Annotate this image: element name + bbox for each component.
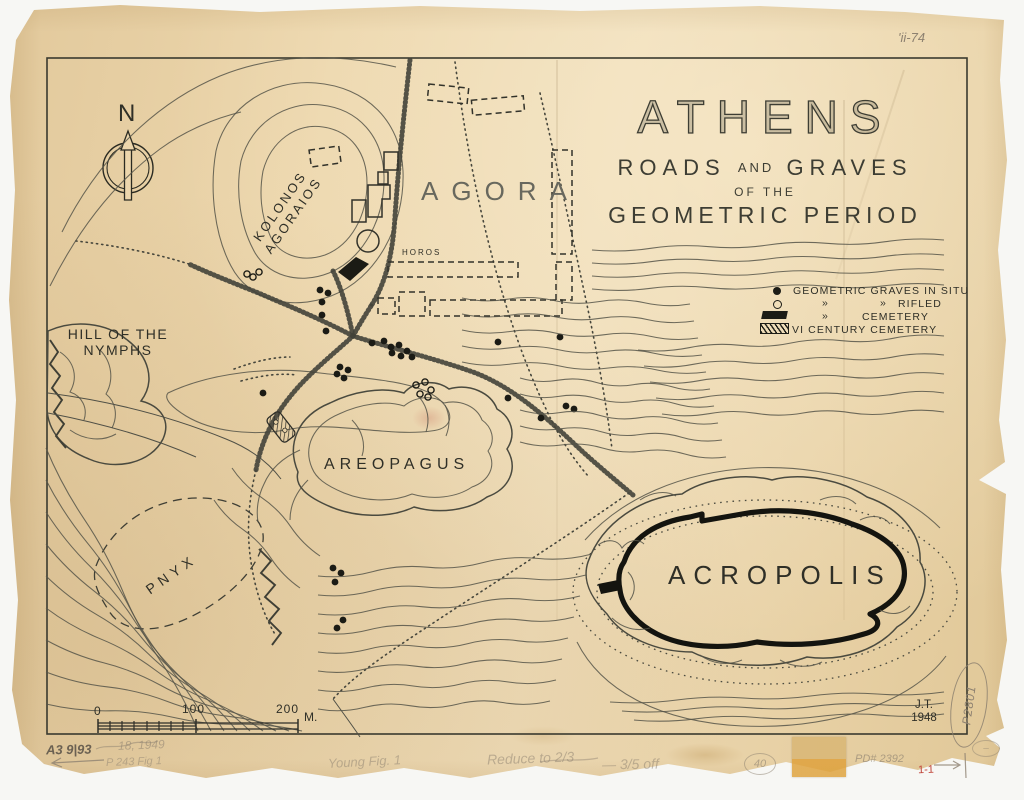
credit-initials: J.T. <box>896 699 952 712</box>
scale-tick-0: 0 <box>94 704 101 718</box>
legend-ditto: » <box>880 297 887 309</box>
legend-row2-label: RIFLED <box>898 298 942 310</box>
map-subtitle-line2: OF THE <box>575 185 955 199</box>
scale-unit: M. <box>304 710 317 724</box>
map-title-block: ATHENS ROADS AND GRAVES OF THE GEOMETRIC… <box>575 94 955 229</box>
note-reduce2: — 3/5 off <box>602 756 659 773</box>
note-pd-number: PD# 2392 <box>855 753 904 765</box>
scale-tick-100: 100 <box>182 702 205 716</box>
subtitle-word: ROADS <box>617 155 725 180</box>
legend-row1-label: GEOMETRIC GRAVES IN SITU <box>793 285 969 297</box>
legend-grave-in-situ-icon <box>773 287 781 295</box>
map-title: ATHENS <box>575 94 955 140</box>
map-subtitle-line1: ROADS AND GRAVES <box>575 155 955 181</box>
note-reduce: Reduce to 2/3 <box>487 748 575 767</box>
label-hill-line2: NYMPHS <box>60 342 176 358</box>
label-hill-line1: HILL OF THE <box>60 326 176 342</box>
legend-row3-label: CEMETERY <box>862 311 929 323</box>
legend-row4-label: VI CENTURY CEMETERY <box>792 324 937 336</box>
compass-north-label: N <box>118 100 135 128</box>
credit-year: 1948 <box>896 712 952 725</box>
note-code: A3 9|93 <box>46 742 92 758</box>
legend-vi-century-icon <box>760 323 789 334</box>
subtitle-word: GRAVES <box>786 155 912 180</box>
legend-grave-rifled-icon <box>773 300 782 309</box>
note-circled-number: 40 <box>744 753 776 775</box>
scale-tick-200: 200 <box>276 702 299 716</box>
legend-cemetery-icon <box>761 311 788 319</box>
legend-ditto: » <box>822 297 829 309</box>
label-acropolis: ACROPOLIS <box>668 560 892 591</box>
circled-number-value: 40 <box>754 758 766 770</box>
label-hill-of-the-nymphs: HILL OF THE NYMPHS <box>60 326 176 358</box>
circled-dash-value: – <box>983 743 989 754</box>
note-fig: P 243 Fig 1 <box>106 755 162 769</box>
note-date: 18, 1949 <box>118 737 165 753</box>
scan-background: N ATHENS ROADS AND GRAVES OF THE GEOMETR… <box>0 0 1024 800</box>
note-circled-dash: – <box>972 740 1000 757</box>
cartographer-credit: J.T. 1948 <box>896 699 952 725</box>
label-agora: AGORA <box>421 176 580 207</box>
note-red-mark: 1-1 <box>918 764 934 777</box>
label-areopagus: AREOPAGUS <box>324 456 469 474</box>
map-subtitle-line3: GEOMETRIC PERIOD <box>575 202 955 229</box>
subtitle-word-and: AND <box>738 160 774 175</box>
note-top-right: 'ii-74 <box>898 30 925 45</box>
label-horos: HOROS <box>402 248 441 257</box>
legend-ditto: » <box>822 310 829 322</box>
tape-patch <box>792 737 846 777</box>
